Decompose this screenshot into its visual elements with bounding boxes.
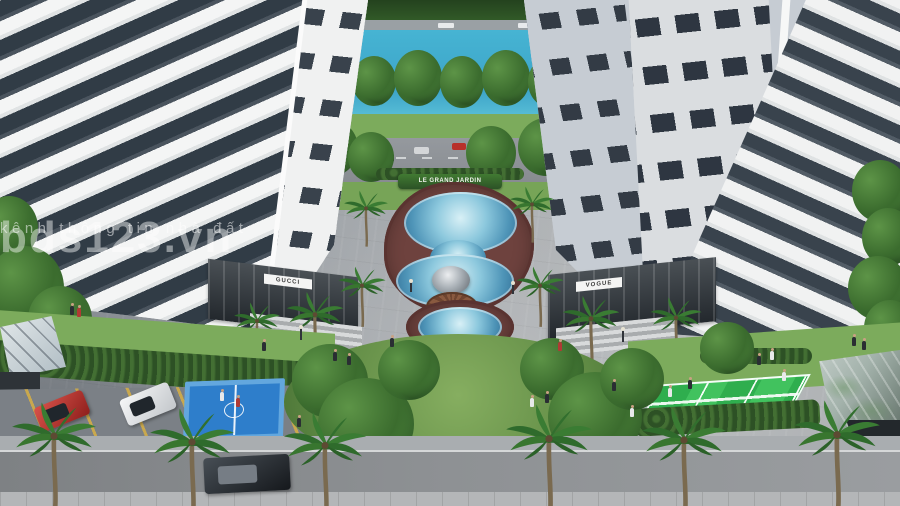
distant-vehicle xyxy=(518,23,528,28)
person xyxy=(545,394,549,403)
red-car xyxy=(452,143,466,150)
person xyxy=(558,342,562,351)
tennis-player xyxy=(668,388,672,397)
palm-tree xyxy=(508,182,556,244)
street-sidewalk-lower xyxy=(0,492,900,506)
aerial-render-apartment-complex: LE GRAND JARDIN GUCCI VOGUE xyxy=(0,0,900,506)
plaza-lamp-post xyxy=(622,330,624,342)
pool-dome-sculpture xyxy=(432,266,470,294)
person xyxy=(757,356,761,365)
street-palm-tree xyxy=(790,392,884,506)
garden-tree xyxy=(378,340,440,400)
person xyxy=(852,337,856,346)
basketball-player xyxy=(220,392,224,401)
pool-lamp-post xyxy=(410,282,412,292)
distant-bus xyxy=(438,23,454,28)
person xyxy=(297,418,301,427)
tree xyxy=(700,322,754,374)
tree xyxy=(440,56,484,108)
person xyxy=(688,380,692,389)
tennis-player xyxy=(782,372,786,381)
tree xyxy=(394,50,442,106)
street-palm-tree xyxy=(502,396,596,506)
palm-tree xyxy=(342,186,390,248)
person xyxy=(347,356,351,365)
person xyxy=(262,342,266,351)
street-palm-tree xyxy=(8,394,100,506)
street-palm-tree xyxy=(638,398,730,506)
person xyxy=(530,398,534,407)
street xyxy=(0,450,900,494)
person xyxy=(630,408,634,417)
person xyxy=(390,338,394,347)
palm-tree xyxy=(514,262,566,328)
silver-car xyxy=(414,147,429,154)
tree xyxy=(482,50,530,106)
street-palm-tree xyxy=(280,404,370,506)
person xyxy=(77,308,81,317)
person xyxy=(70,306,74,315)
street-palm-tree xyxy=(146,400,238,506)
person xyxy=(612,382,616,391)
person xyxy=(862,341,866,350)
basketball-player xyxy=(236,398,240,407)
person xyxy=(333,352,337,361)
person xyxy=(770,351,774,360)
plaza-lamp-post xyxy=(300,328,302,340)
